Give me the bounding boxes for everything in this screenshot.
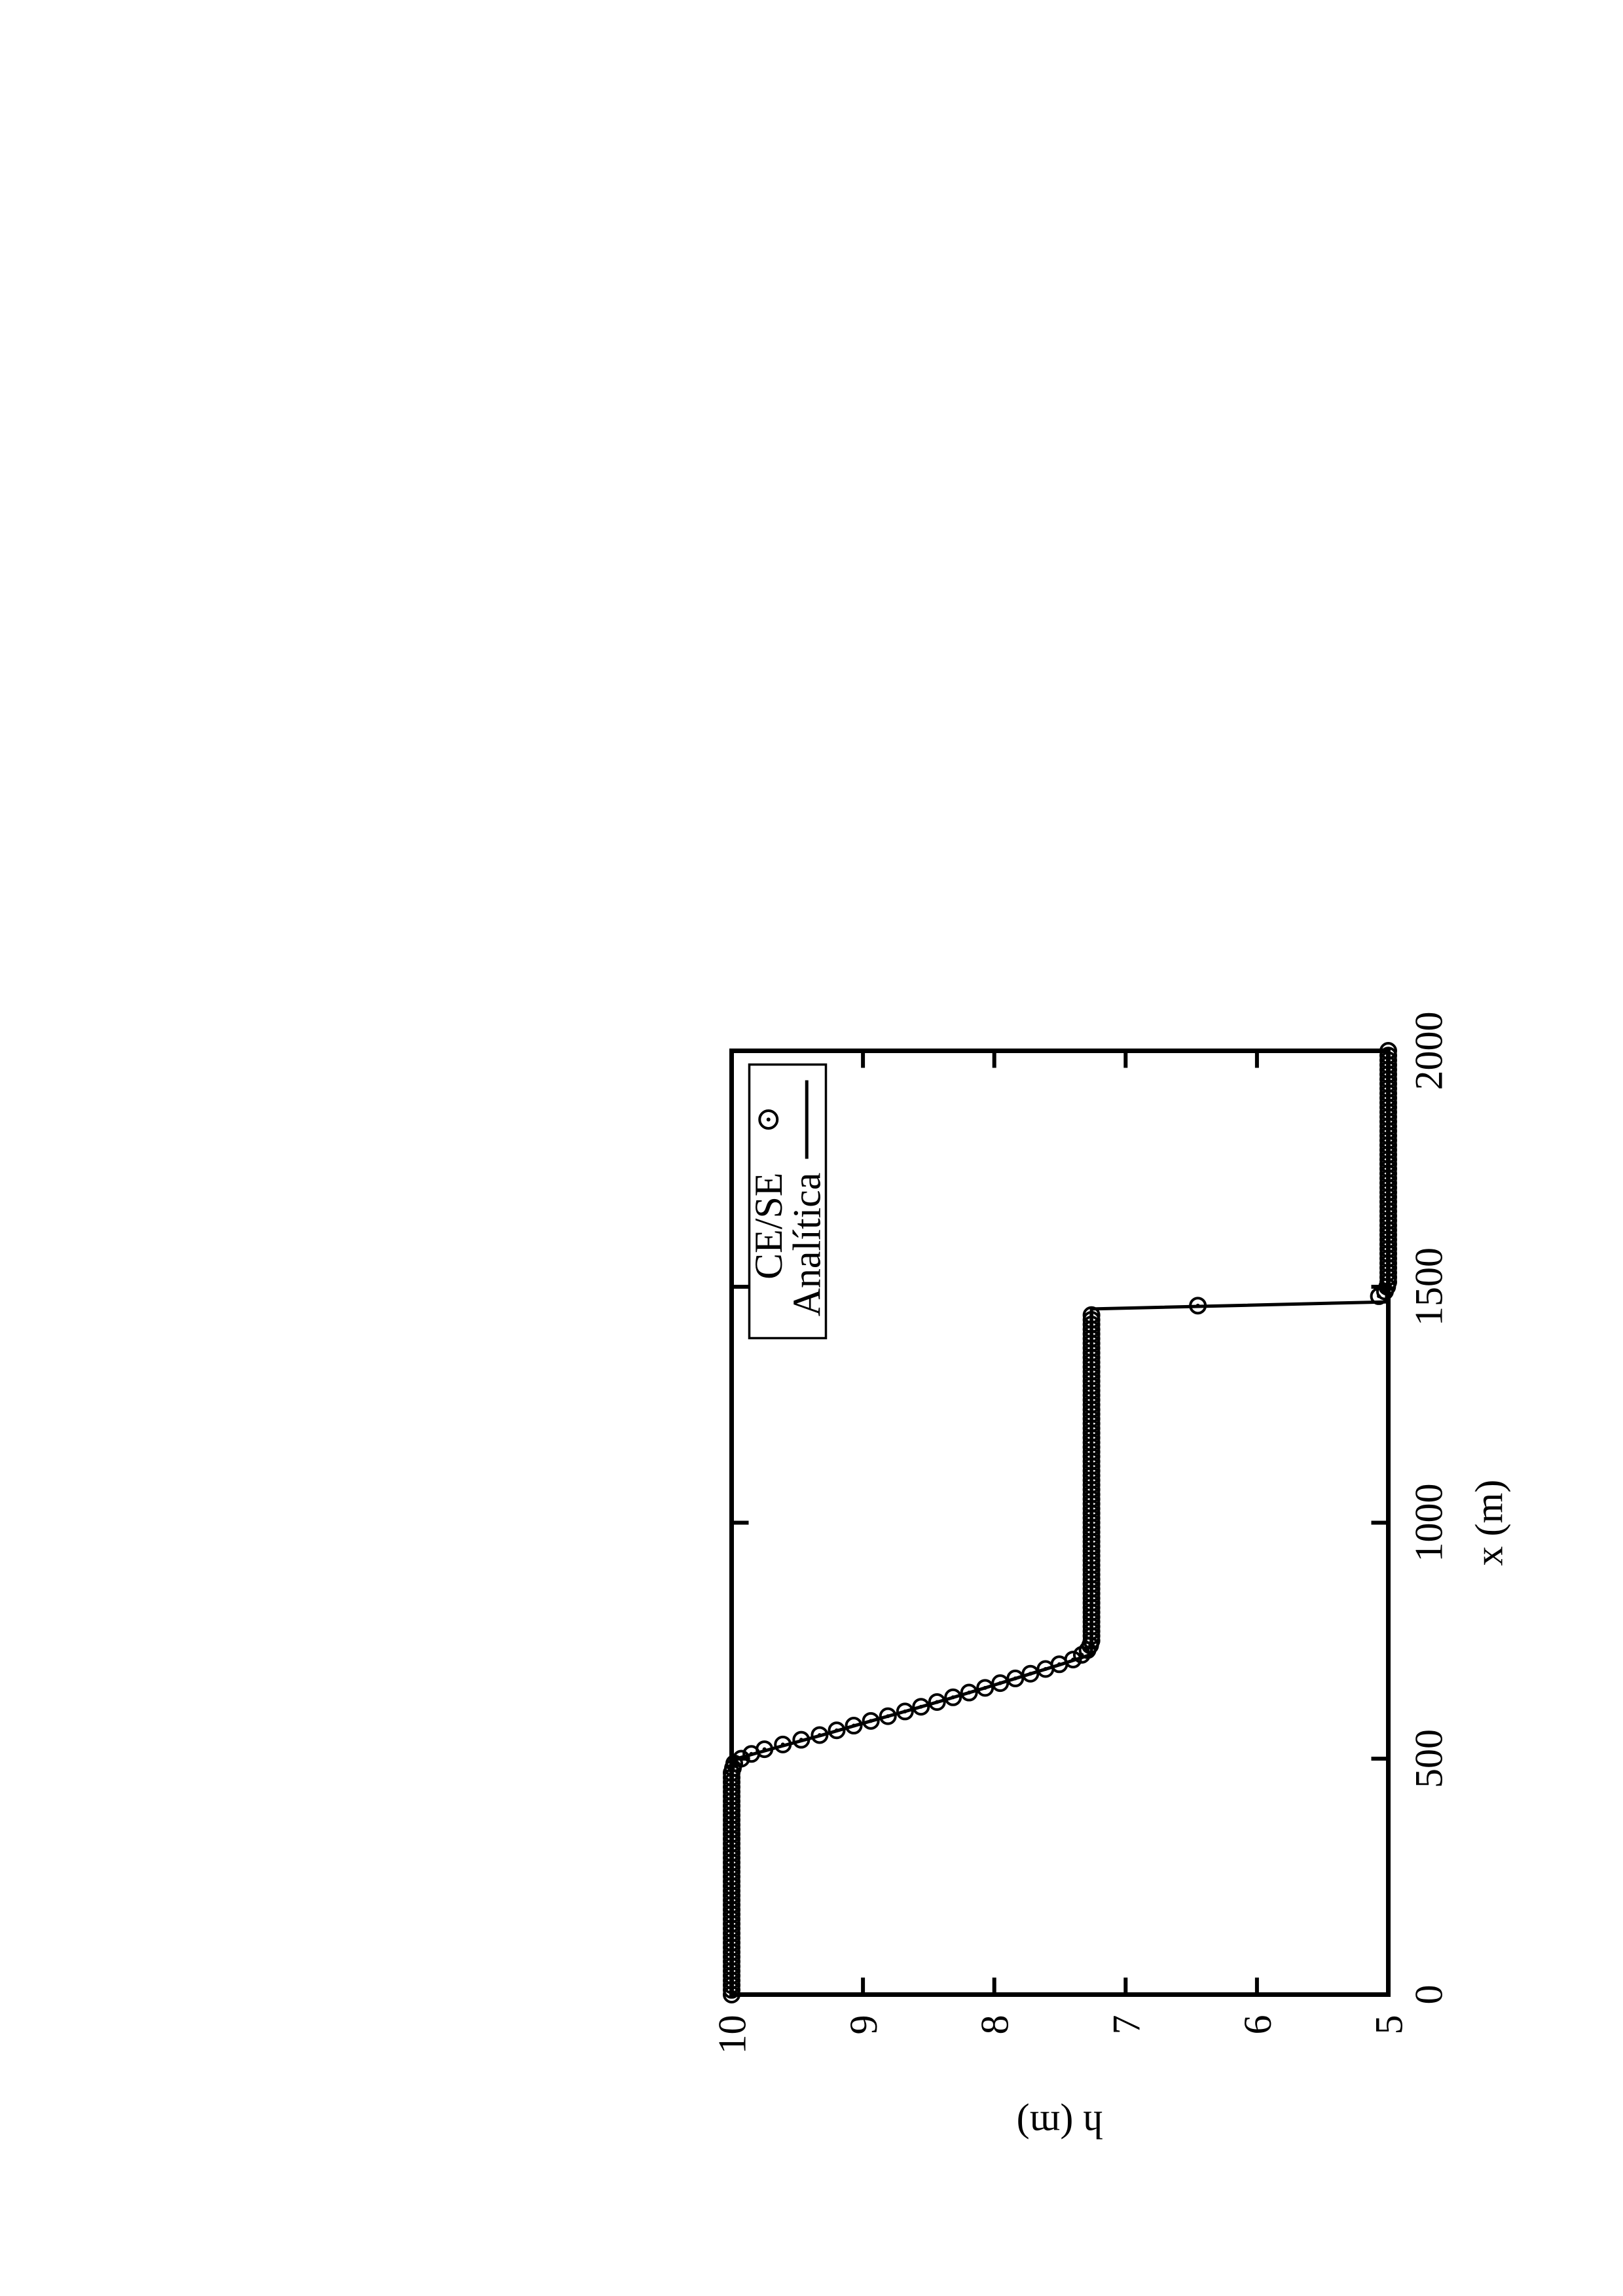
axes-group: 05001000150020005678910 [710, 1011, 1450, 2054]
x-tick-label: 1500 [1407, 1247, 1450, 1326]
figure-page: 05001000150020005678910 CE/SEAnalítica x… [0, 0, 1623, 2296]
x-tick-label: 2000 [1407, 1011, 1450, 1090]
legend-label-cese: CE/SE [746, 1172, 790, 1279]
y-tick-label: 9 [842, 2015, 885, 2034]
y-tick-label: 6 [1235, 2015, 1279, 2034]
plot-border [731, 1050, 1388, 1994]
legend-label-analitica: Analítica [785, 1172, 828, 1316]
y-tick-label: 7 [1104, 2015, 1148, 2034]
y-axis-label: h (m) [1016, 2103, 1103, 2146]
y-tick-label: 5 [1367, 2015, 1410, 2034]
y-tick-label: 10 [710, 2015, 754, 2054]
legend-group: CE/SEAnalítica [746, 1064, 828, 1338]
legend-marker-dot-icon [766, 1117, 770, 1121]
x-axis-label: x (m) [1467, 1479, 1510, 1566]
x-tick-label: 1000 [1407, 1483, 1450, 1562]
x-tick-label: 0 [1407, 1984, 1450, 2004]
analytic-line [731, 1050, 1388, 1994]
y-tick-label: 8 [973, 2015, 1016, 2034]
x-tick-label: 500 [1407, 1729, 1450, 1788]
plot-canvas: 05001000150020005678910 CE/SEAnalítica x… [0, 0, 1623, 2296]
rotated-chart-container: 05001000150020005678910 CE/SEAnalítica x… [0, 0, 1623, 2296]
